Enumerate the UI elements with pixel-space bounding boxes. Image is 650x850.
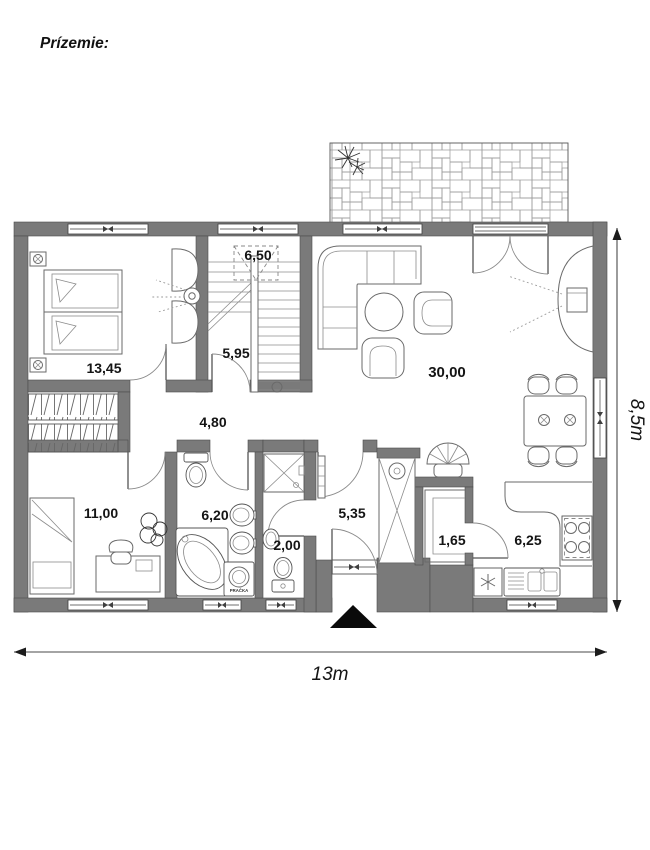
washbasin — [230, 532, 256, 554]
double-bed — [44, 270, 122, 354]
wall-bedroom-top-a — [28, 380, 130, 392]
terrace — [330, 143, 568, 226]
wall-closet-top — [377, 448, 420, 458]
room-label-stair-landing: 6,50 — [244, 247, 271, 263]
dining-chair — [556, 447, 577, 467]
wall-porch-right — [377, 558, 430, 612]
fan-armchair — [427, 443, 469, 477]
wall-bedroom-top-b — [166, 380, 212, 392]
dining-set — [524, 374, 586, 466]
coffee-table — [365, 293, 403, 331]
toilet-icon — [272, 558, 294, 593]
window-kitchen — [507, 600, 557, 610]
wc-fixtures — [263, 454, 304, 592]
room-label-entry-hall: 5,35 — [338, 505, 365, 521]
room-label-corridor: 4,80 — [199, 414, 226, 430]
reading-chairs — [150, 249, 200, 343]
coat-shelf — [318, 456, 325, 498]
room-label-wc: 2,00 — [273, 537, 300, 553]
window-bedroom-top — [68, 224, 148, 234]
room-label-living: 30,00 — [428, 364, 466, 381]
door-bedroom-bottom — [128, 452, 165, 489]
wall-left — [14, 236, 28, 612]
dining-chair — [528, 374, 549, 394]
wall-pantry-right-a — [465, 487, 473, 523]
bedroom-top-furniture — [30, 249, 200, 372]
wardrobe-closet — [28, 394, 118, 420]
tall-closet — [379, 458, 415, 563]
room-label-pantry: 1,65 — [438, 532, 465, 548]
stove — [562, 516, 592, 560]
wall-hall-top-a — [304, 440, 318, 452]
wall-bedroom2-bath — [165, 452, 177, 598]
wall-bath-wc — [255, 452, 263, 598]
page-title: Prízemie: — [40, 35, 109, 52]
dimension-label-width: 13m — [312, 664, 349, 685]
washing-machine: PRAČKA — [224, 562, 254, 596]
room-label-bedroom-bottom: 11,00 — [84, 505, 118, 521]
staircase — [208, 246, 300, 392]
refrigerator — [474, 568, 502, 596]
room-label-kitchen: 6,25 — [514, 532, 541, 548]
door-pantry — [473, 523, 508, 558]
entry-door — [332, 529, 377, 574]
wardrobe-closet — [28, 424, 118, 452]
window-staircase — [218, 224, 298, 234]
bathroom-fixtures: PRAČKA — [167, 453, 256, 599]
dining-table — [524, 396, 586, 446]
wall-stair-living — [300, 236, 312, 392]
window-bedroom-bottom — [68, 600, 148, 610]
wall-pantry-right-b — [465, 553, 473, 565]
window-dining — [594, 378, 606, 458]
wall-bath-top-a — [177, 440, 210, 452]
wall-wc-hall-lower — [304, 536, 316, 612]
window-bathroom — [203, 600, 241, 610]
wall-bedroom-stair — [196, 236, 208, 392]
tv-icon — [567, 288, 587, 312]
dining-chair — [528, 447, 549, 467]
floor-plan-svg: Prízemie: — [0, 0, 650, 850]
door-bathroom — [210, 452, 248, 490]
wall-wc-top — [263, 440, 304, 452]
floor-plan-canvas: Prízemie: — [0, 0, 650, 850]
window-living — [343, 224, 422, 234]
wall-pantry-bottom — [430, 565, 473, 612]
washing-machine-label: PRAČKA — [230, 588, 248, 593]
toilet-icon — [184, 453, 208, 487]
wall-bath-top-b — [248, 440, 263, 452]
armchair-right — [414, 292, 452, 334]
wall-pantry-top — [415, 477, 473, 487]
kitchen-sink — [504, 568, 560, 596]
stair-rail — [251, 256, 258, 392]
terrace-paving — [330, 143, 568, 226]
shower — [264, 454, 304, 492]
entrance-arrow-marker — [330, 605, 377, 628]
room-label-bedroom-top: 13,45 — [86, 360, 121, 376]
armchair-bottom — [362, 338, 404, 378]
plant-icon — [140, 513, 167, 546]
desk-chair — [109, 540, 133, 564]
single-bed — [30, 498, 74, 594]
wall-hall-top-b — [363, 440, 377, 452]
side-table — [184, 288, 200, 304]
door-bedroom-top — [130, 344, 166, 380]
wardrobes — [28, 394, 118, 452]
pantry-shelves — [425, 490, 465, 562]
corner-sofa — [318, 246, 421, 349]
terrace-double-door — [473, 224, 548, 274]
wall-pantry-left — [415, 487, 423, 565]
room-label-stair-hall: 5,95 — [222, 345, 249, 361]
washbasin — [230, 504, 256, 526]
room-label-bathroom: 6,20 — [201, 507, 228, 523]
dining-chair — [556, 374, 577, 394]
dimension-label-height: 8,5m — [626, 399, 647, 441]
wall-porch-left — [316, 560, 332, 612]
wall-wc-hall-upper — [304, 452, 316, 500]
window-wc — [266, 600, 296, 610]
